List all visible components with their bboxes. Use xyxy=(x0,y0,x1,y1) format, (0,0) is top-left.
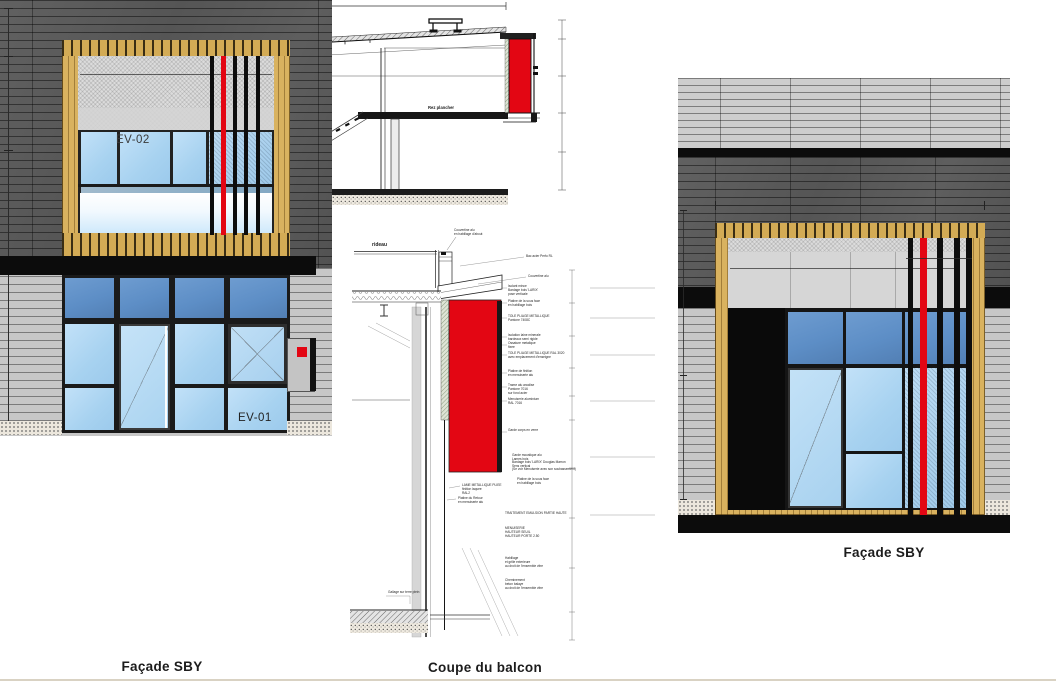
transom-pane xyxy=(846,312,902,364)
facade-right-black-line xyxy=(678,148,1010,157)
side-panel-post xyxy=(310,338,316,391)
facade-bar-black xyxy=(954,238,960,515)
transom-pane xyxy=(120,278,169,318)
coupe-annotation: LAME METALLIQUE PLIEE finition laquee RA… xyxy=(462,484,501,495)
facade-bar-red xyxy=(920,238,927,515)
facade-bar-black xyxy=(937,238,943,515)
coupe-annotation: Bac acier Perfo RL xyxy=(526,255,553,259)
facade-left-dimension xyxy=(8,8,9,432)
coupe-caption: Coupe du balcon xyxy=(400,660,570,675)
glazing-pane xyxy=(65,388,114,430)
wood-slat-band-top xyxy=(62,40,290,56)
upper-opening xyxy=(78,56,274,233)
coupe-annotations: Couvertine alu en habillage d'aboutBac a… xyxy=(350,228,662,648)
interior-structure xyxy=(358,48,508,190)
coupe-annotation: Couvertine alu en habillage d'about xyxy=(454,229,482,237)
door-handle xyxy=(165,326,167,428)
coupe-annotation: Habillage et grille exterieure au droit … xyxy=(505,557,543,568)
wood-slat-band-bottom xyxy=(62,233,290,256)
coupe-annotation: TOLE PLIAGE METALLIQUE Pantone 7408C xyxy=(508,315,550,323)
facade-right-top-cladding xyxy=(678,78,1010,148)
coupe-annotation: Platine de finition en menuiserie alu xyxy=(508,370,533,378)
openable-window xyxy=(228,324,287,384)
facade-bar-black xyxy=(210,56,214,235)
coupe-annotation: Menuiserie aluminium RAL 7016 xyxy=(508,398,539,406)
transom-pane xyxy=(230,278,287,318)
glazing-pane xyxy=(175,324,224,384)
coupe-annotation: Platine de la sous face en habillage boi… xyxy=(508,300,540,308)
window-pane xyxy=(81,132,117,184)
window-pane xyxy=(173,132,206,184)
coupe-annotation: Isolant mince Bardage bois 'LARIX' pose … xyxy=(508,285,538,296)
coupe-annotation: TRAITEMENT EMULSION PARTIE HAUTE xyxy=(505,512,567,516)
page-divider xyxy=(0,679,1056,681)
red-marker xyxy=(297,347,307,357)
glazing-pane xyxy=(175,388,224,430)
facade-left-caption: Façade SBY xyxy=(78,659,246,674)
interior-black-panel xyxy=(728,308,785,510)
section-right-dimension xyxy=(558,20,566,190)
transom-pane xyxy=(65,278,114,318)
transom-pane xyxy=(788,312,843,364)
drawing-sheet: Pente 3 % Rez plancher xyxy=(0,0,1056,684)
wood-frame-box xyxy=(715,223,985,515)
ground-hatch xyxy=(0,421,62,435)
facade-right xyxy=(678,75,1010,533)
facade-bar-black xyxy=(233,56,237,235)
facade-right-side-dimension xyxy=(683,210,684,500)
facade-bar-black xyxy=(966,238,972,515)
coupe-annotation: TOLE PLIAGE METALLIQUE RAL 3020 avec emp… xyxy=(508,352,564,360)
coupe-annotation: MENUISERIE HAUTEUR SEUIL HAUTEUR PORTE 2… xyxy=(505,527,539,538)
facade-right-dimension xyxy=(715,205,985,206)
coupe-annotation: Garde corps en verre xyxy=(508,429,538,433)
cladding-joint xyxy=(318,0,319,268)
facade-left: EV-02 EV-01 xyxy=(0,0,332,436)
wood-slat-band-top xyxy=(715,223,985,238)
section-balcony-red-panel xyxy=(500,33,540,122)
facade-bar-black xyxy=(244,56,248,235)
facade-bar-black xyxy=(908,238,913,515)
facade-right-caption: Façade SBY xyxy=(814,545,954,560)
window-label-ev01: EV-01 xyxy=(238,412,272,424)
storefront xyxy=(62,275,290,433)
bar-dimension xyxy=(906,258,972,259)
entrance-door xyxy=(119,324,170,430)
cladding-joint xyxy=(32,0,33,268)
coupe-annotation: Couvertine alu xyxy=(528,275,549,279)
rooftop-unit xyxy=(429,19,462,32)
coupe-annotation: Platine de la sous face en habillage boi… xyxy=(517,478,549,486)
facade-left-black-band xyxy=(0,256,316,275)
coupe-annotation: Platine du Retour en menuiserie alu xyxy=(458,497,483,505)
wood-frame-box xyxy=(62,40,290,256)
transom-pane xyxy=(175,278,224,318)
facade-bar-black xyxy=(256,56,260,235)
glazing-pane xyxy=(846,368,902,451)
facade-bar-red xyxy=(221,56,226,235)
window-label-ev02: EV-02 xyxy=(116,134,150,146)
facade-right-base-band xyxy=(678,515,1010,533)
glazing-pane xyxy=(846,454,902,508)
coupe-annotation: Trame alu anodise Pantone 7016 sur fond … xyxy=(508,384,534,395)
coupe-annotation: Gallage sur terre plein xyxy=(388,591,419,595)
side-panel xyxy=(287,338,315,392)
coupe-annotation: Cheminement beton balaye au droit de l'e… xyxy=(505,579,543,590)
window-pane xyxy=(209,132,272,184)
coupe-annotation: (Se voir Menuiserie avec son soubassemen… xyxy=(512,468,576,472)
glazed-door xyxy=(788,368,843,508)
ground-hatch xyxy=(287,421,332,435)
coupe-annotation: Ossature metalique fixee xyxy=(508,342,536,350)
right-opening xyxy=(728,238,972,515)
right-glazing xyxy=(785,308,905,510)
mezzanine-floor-label: Rez plancher xyxy=(428,105,454,110)
ground-hatch xyxy=(678,500,715,515)
glazing-pane xyxy=(65,324,114,384)
ground-hatch xyxy=(985,500,1010,515)
